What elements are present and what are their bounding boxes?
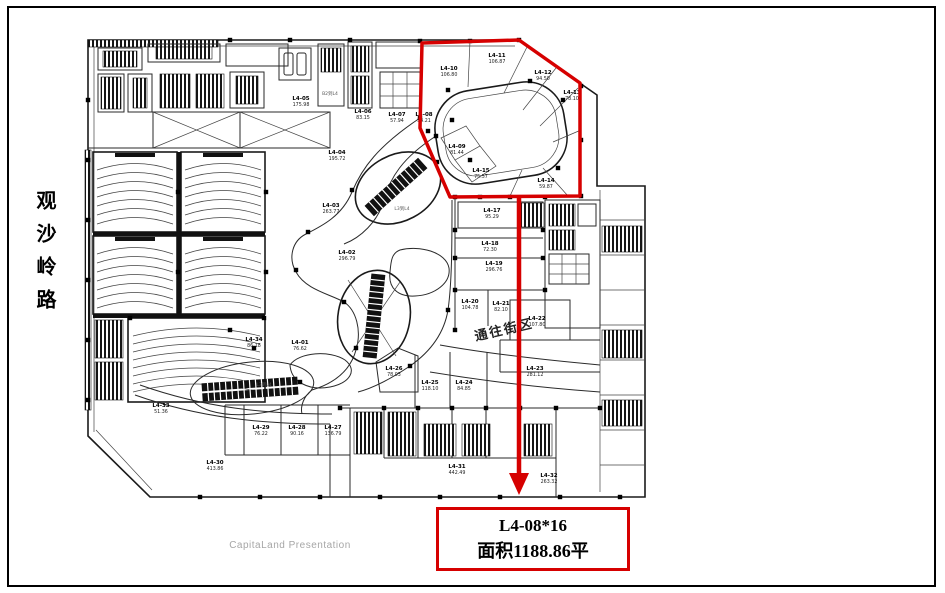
unit-label-l4-20: L4-20104.78: [461, 299, 478, 311]
column-marker: [86, 278, 90, 282]
unit-label-l4-13: L4-1378.10: [563, 90, 580, 102]
column-marker: [558, 495, 562, 499]
unit-label-l4-05: L4-05175.98: [292, 96, 309, 108]
unit-label-l4-17: L4-1795.29: [483, 208, 500, 220]
unit-label-l4-28: L4-2890.16: [288, 425, 305, 437]
level-link-label: B2到L4: [322, 90, 338, 97]
unit-label-l4-15: L4-1575.57: [472, 168, 489, 180]
unit-label-l4-27: L4-27136.79: [324, 425, 341, 437]
unit-label-l4-07: L4-0757.94: [388, 112, 405, 124]
column-marker: [554, 406, 558, 410]
column-marker: [543, 288, 547, 292]
corridor-to-street-label: 通往街区: [473, 316, 535, 344]
unit-label-l4-29: L4-2976.22: [252, 425, 269, 437]
floor-plan-drawing: 通往街区 L4-0176.62L4-02296.79L4-03263.77L4-…: [0, 0, 945, 593]
column-marker: [318, 495, 322, 499]
unit-label-l4-31: L4-31442.49: [448, 464, 465, 476]
back-of-house-rooms: [88, 40, 422, 148]
column-marker: [198, 495, 202, 499]
column-marker: [382, 406, 386, 410]
column-marker: [262, 316, 266, 320]
column-marker: [598, 406, 602, 410]
unit-label-l4-12: L4-1294.50: [534, 70, 551, 82]
column-marker: [446, 88, 450, 92]
column-marker: [86, 398, 90, 402]
column-marker: [453, 256, 457, 260]
highlight-arrow-head: [509, 473, 529, 495]
column-marker: [434, 134, 438, 138]
road-name-label: 观沙岭路: [30, 190, 59, 340]
mall-corridors: [135, 118, 600, 424]
unit-label-l4-30: L4-30413.86: [206, 460, 223, 472]
column-marker: [176, 270, 180, 274]
column-marker: [450, 406, 454, 410]
column-marker: [264, 270, 268, 274]
highlight-callout: L4-08*16 面积1188.86平: [436, 507, 630, 571]
unit-label-l4-04: L4-04195.72: [328, 150, 345, 162]
unit-label-l4-18: L4-1872.30: [481, 241, 498, 253]
column-marker: [264, 190, 268, 194]
column-marker: [86, 158, 90, 162]
unit-label-l4-03: L4-03263.77: [322, 203, 339, 215]
column-marker: [354, 346, 358, 350]
column-marker: [484, 406, 488, 410]
unit-label-l4-34: L4-3486.18: [245, 337, 262, 349]
column-marker: [228, 38, 232, 42]
column-marker: [176, 190, 180, 194]
unit-label-l4-14: L4-1459.87: [537, 178, 554, 190]
column-marker: [446, 308, 450, 312]
unit-label-l4-02: L4-02296.79: [338, 250, 355, 262]
column-marker: [438, 495, 442, 499]
level-link-label: L3到L4: [394, 205, 409, 212]
unit-label-l4-09: L4-0981.44: [448, 144, 465, 156]
column-marker: [556, 166, 560, 170]
column-marker: [378, 495, 382, 499]
callout-area: 面积1188.86平: [477, 537, 589, 563]
column-marker: [86, 338, 90, 342]
column-marker: [342, 300, 346, 304]
column-marker: [453, 328, 457, 332]
level-link-label: L3到L4: [256, 381, 271, 388]
escalator-atrium-mid: [330, 264, 417, 369]
presentation-slide: { "slide": { "background": "#ffffff", "f…: [0, 0, 945, 593]
unit-label-l4-01: L4-0176.62: [291, 340, 308, 352]
unit-label-l4-10: L4-10106.80: [440, 66, 457, 78]
unit-label-l4-21: L4-2182.10: [492, 301, 509, 313]
unit-label-l4-24: L4-2484.85: [455, 380, 472, 392]
watermark-text: CapitaLand Presentation: [185, 540, 395, 551]
column-marker: [541, 228, 545, 232]
column-marker: [416, 406, 420, 410]
column-marker: [294, 268, 298, 272]
column-marker: [618, 495, 622, 499]
column-marker: [288, 38, 292, 42]
column-marker: [541, 256, 545, 260]
column-marker: [86, 218, 90, 222]
column-marker: [338, 406, 342, 410]
small-labels-layer: B2到L4L3到L4L3到L4: [256, 90, 409, 388]
cinema-block: [85, 150, 265, 410]
unit-label-l4-33: L4-3351.36: [152, 403, 169, 415]
column-marker: [498, 495, 502, 499]
column-marker: [258, 495, 262, 499]
column-marker: [408, 364, 412, 368]
callout-unit-range: L4-08*16: [499, 516, 567, 536]
column-marker: [128, 316, 132, 320]
unit-label-l4-32: L4-32263.32: [540, 473, 557, 485]
column-marker: [426, 129, 430, 133]
column-marker: [348, 38, 352, 42]
column-marker: [450, 118, 454, 122]
unit-label-l4-06: L4-0683.15: [354, 109, 371, 121]
column-marker: [468, 158, 472, 162]
escalator-atrium-top: [343, 138, 453, 239]
column-marker: [453, 228, 457, 232]
unit-label-l4-25: L4-25118.10: [421, 380, 438, 392]
column-marker: [228, 328, 232, 332]
unit-label-l4-19: L4-19296.76: [485, 261, 502, 273]
column-marker: [86, 98, 90, 102]
unit-label-l4-11: L4-11106.87: [488, 53, 505, 65]
column-marker: [453, 288, 457, 292]
column-marker: [306, 230, 310, 234]
column-marker: [298, 380, 302, 384]
column-marker: [350, 188, 354, 192]
column-marker: [528, 79, 532, 83]
